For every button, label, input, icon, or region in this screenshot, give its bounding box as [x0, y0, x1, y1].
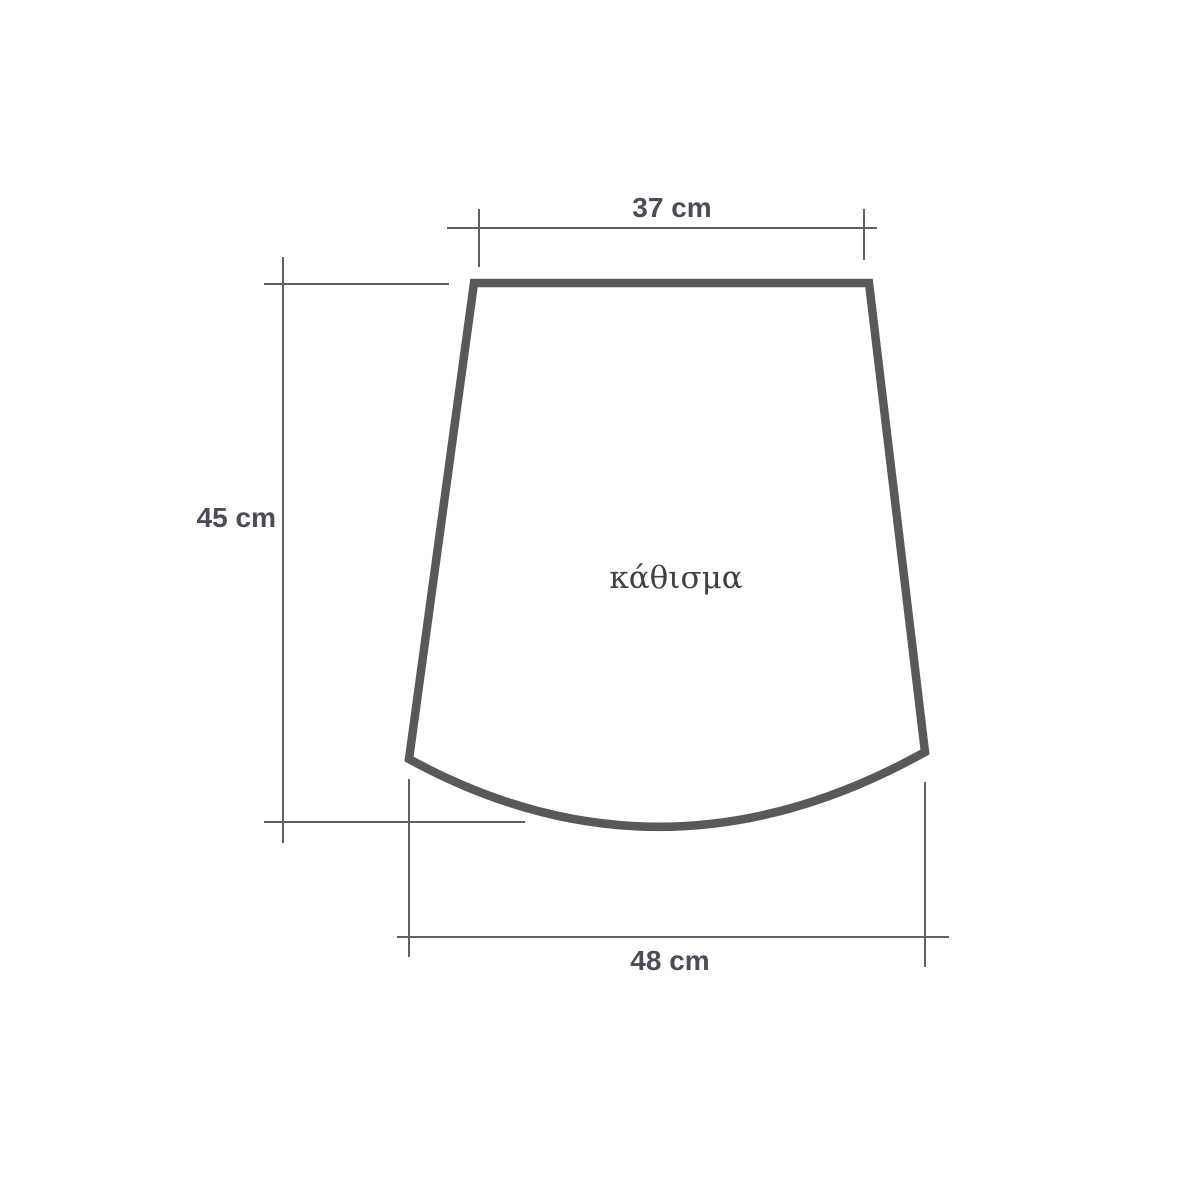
pattern-diagram: 37 cm 45 cm 48 cm κάθισμα: [0, 0, 1200, 1200]
seat-pattern-outline: [409, 283, 925, 827]
part-name-label: κάθισμα: [609, 560, 742, 596]
seat-pattern-svg: 37 cm 45 cm 48 cm κάθισμα: [0, 0, 1200, 1200]
bottom-dimension-label: 48 cm: [630, 945, 709, 976]
top-dimension-label: 37 cm: [632, 192, 711, 223]
left-dimension-label: 45 cm: [197, 502, 276, 533]
